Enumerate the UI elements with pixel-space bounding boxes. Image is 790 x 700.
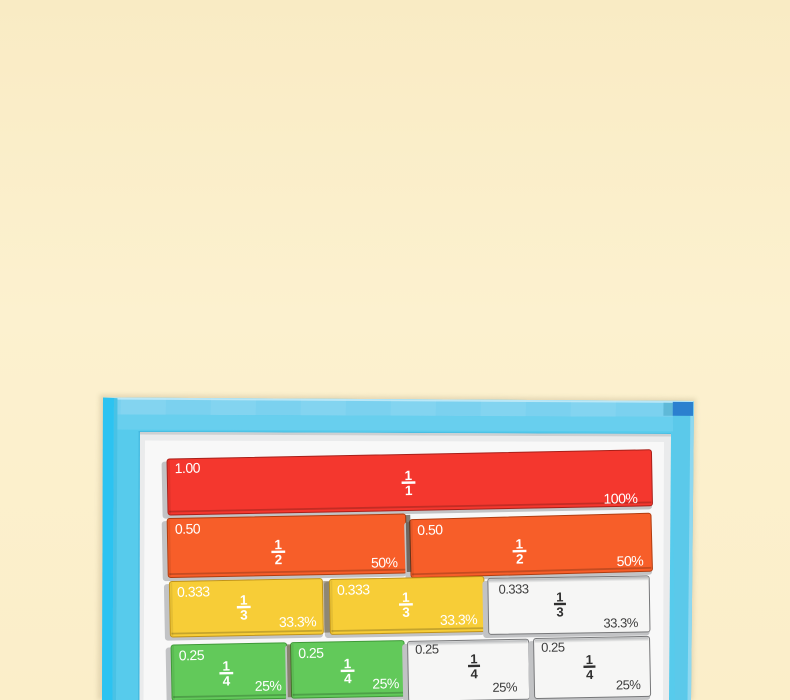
svg-text:50%: 50%	[616, 552, 643, 569]
svg-text:1: 1	[402, 590, 410, 605]
svg-text:1: 1	[240, 592, 248, 607]
svg-text:2: 2	[275, 552, 283, 567]
svg-text:1: 1	[515, 536, 523, 551]
svg-text:0.50: 0.50	[175, 520, 201, 536]
svg-text:25%: 25%	[372, 675, 399, 692]
svg-text:33.3%: 33.3%	[440, 611, 478, 628]
svg-text:50%: 50%	[371, 554, 398, 571]
svg-text:0.333: 0.333	[177, 583, 211, 600]
svg-text:25%: 25%	[492, 679, 518, 694]
svg-text:0.25: 0.25	[541, 639, 565, 654]
svg-text:33.3%: 33.3%	[279, 613, 317, 630]
svg-text:3: 3	[402, 605, 410, 620]
svg-text:1: 1	[405, 483, 413, 498]
svg-text:33.3%: 33.3%	[603, 615, 639, 631]
svg-text:25%: 25%	[255, 677, 282, 694]
svg-text:0.50: 0.50	[417, 521, 443, 538]
svg-text:1.00: 1.00	[175, 460, 201, 476]
svg-text:0.333: 0.333	[498, 581, 529, 596]
svg-text:1: 1	[586, 652, 594, 667]
svg-text:25%: 25%	[616, 677, 642, 692]
svg-text:1: 1	[222, 658, 230, 673]
svg-text:3: 3	[240, 607, 248, 622]
svg-text:4: 4	[470, 666, 478, 681]
svg-text:1: 1	[274, 537, 282, 552]
svg-text:0.25: 0.25	[298, 645, 324, 661]
svg-text:0.25: 0.25	[415, 641, 439, 656]
svg-text:1: 1	[404, 468, 412, 483]
svg-text:4: 4	[586, 667, 594, 682]
svg-text:2: 2	[516, 551, 524, 566]
svg-text:3: 3	[556, 604, 563, 619]
svg-text:4: 4	[344, 671, 352, 686]
svg-text:4: 4	[223, 673, 231, 688]
svg-text:1: 1	[556, 589, 563, 604]
svg-text:0.25: 0.25	[179, 647, 205, 663]
svg-text:1: 1	[470, 651, 478, 666]
svg-text:100%: 100%	[603, 490, 637, 507]
svg-text:1: 1	[344, 656, 352, 671]
svg-text:0.333: 0.333	[337, 581, 371, 598]
